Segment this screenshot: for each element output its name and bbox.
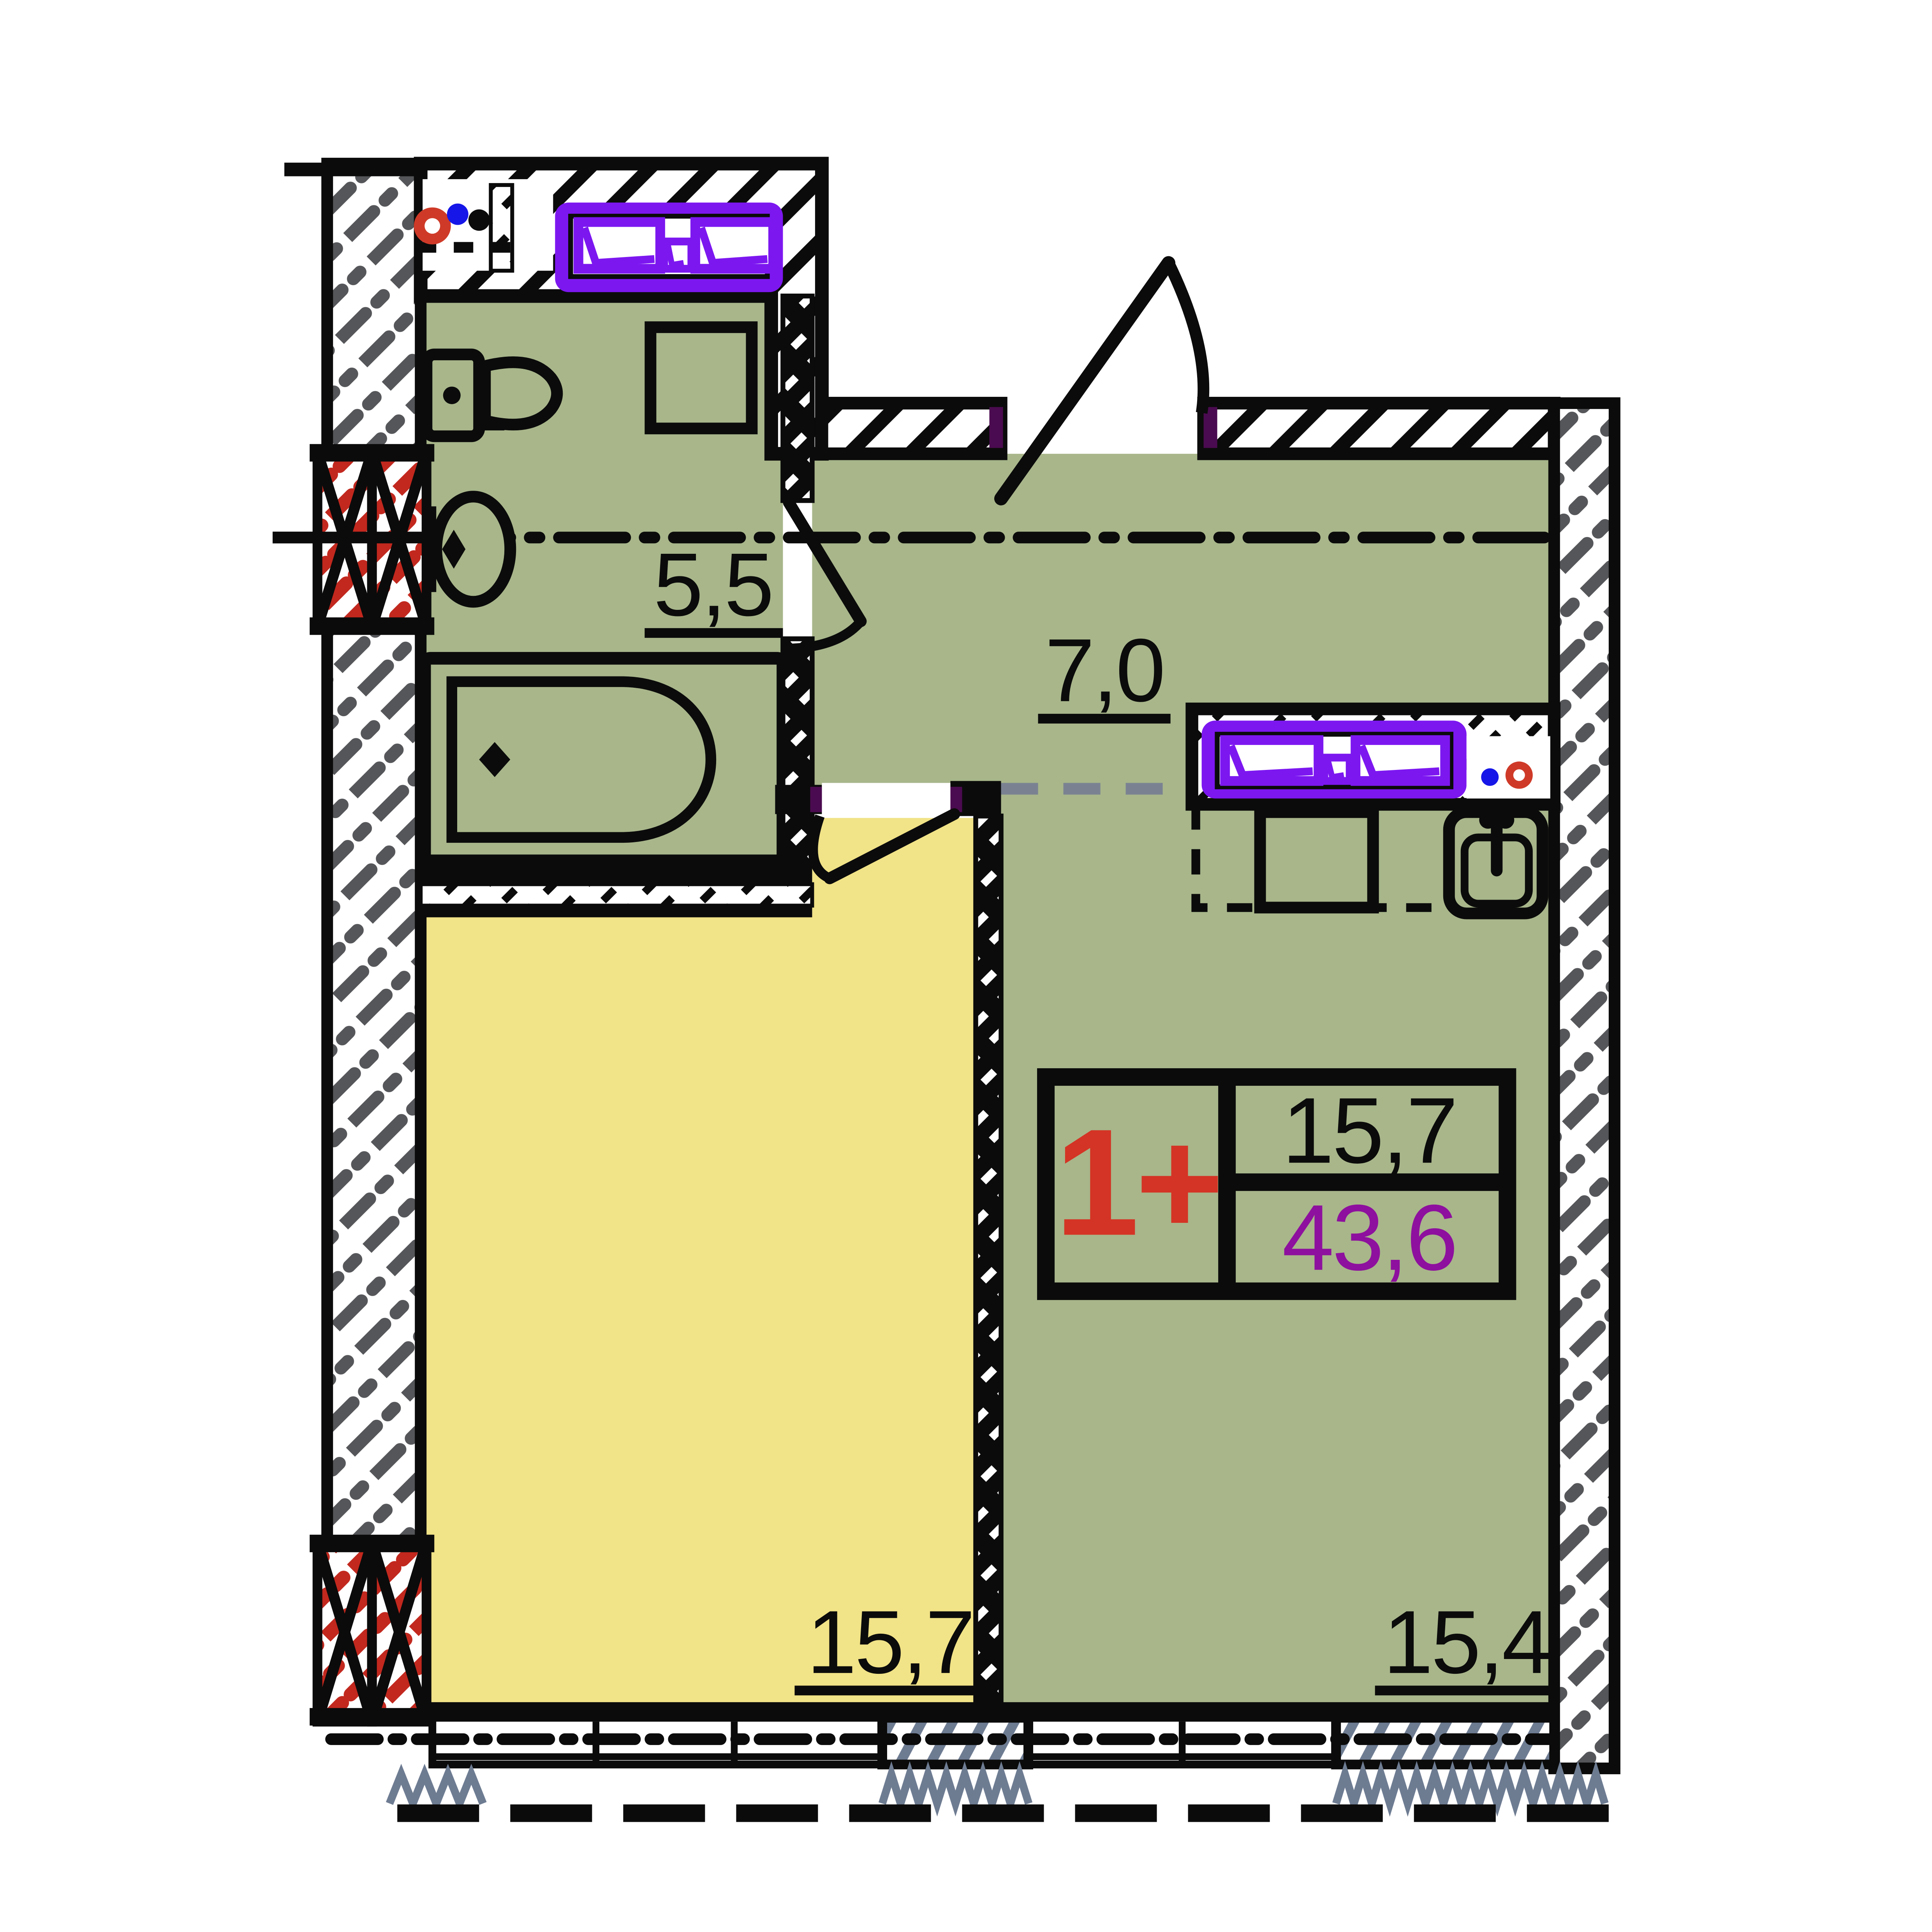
window-kitchen (1202, 720, 1467, 798)
bathroom-bottom-wall (421, 861, 812, 917)
door-opening-gap (822, 783, 950, 816)
kitchen-water-niche (1467, 736, 1550, 798)
stove-symbol (1260, 812, 1373, 907)
living-area-value: 15,7 (1282, 1078, 1456, 1183)
washer-niche (414, 179, 553, 271)
vent-cap (310, 1535, 434, 1552)
toilet-symbol (426, 354, 557, 436)
wall-hatch (421, 884, 812, 905)
entrance-door-swing-arc (1169, 263, 1204, 413)
cold-water-point (1481, 768, 1499, 786)
bedroom-area-label: 15,7 (807, 1592, 974, 1692)
hot-water-hole (1513, 769, 1525, 781)
insulation-zigzag (1336, 1774, 1605, 1803)
cold-water-point (447, 204, 468, 225)
vent-cap (310, 1708, 434, 1726)
wall-edge (421, 905, 812, 917)
apartment-type-value: 1+ (1055, 1097, 1220, 1267)
vent-shaft-bottom (310, 1535, 434, 1726)
insulation-zigzag (882, 1774, 1029, 1803)
window-bathroom (555, 203, 783, 292)
floor-plan-canvas: 1+ 15,7 43,6 5,5 7,0 15,7 15,4 (0, 0, 1932, 1932)
niche-divider (491, 185, 512, 271)
partition-lower (783, 639, 812, 861)
left-exterior-wall (284, 164, 421, 1714)
left-wall (327, 164, 421, 1714)
floor-plan: 1+ 15,7 43,6 5,5 7,0 15,7 15,4 (0, 0, 1932, 1932)
cabinet-symbol (650, 327, 752, 428)
toilet-flush-dot (443, 387, 461, 404)
total-area-value: 43,6 (1282, 1185, 1456, 1290)
door-jamb-mark (990, 407, 1003, 448)
vent-shaft-top (273, 444, 440, 635)
bathtub-outer (424, 658, 783, 861)
insulation-zigzag (389, 1774, 483, 1803)
bathroom-area-label: 5,5 (653, 534, 772, 634)
partition-upper (783, 296, 812, 500)
entry-wall-left (822, 403, 1001, 454)
bathtub-symbol (424, 658, 783, 861)
kitchen-sink-symbol (1449, 811, 1543, 914)
bedroom-floor (421, 818, 976, 1714)
living-kitchen-area-label: 15,4 (1383, 1592, 1550, 1692)
hot-water-hole (424, 218, 440, 234)
right-exterior-wall (1554, 403, 1615, 1768)
door-jamb-mark (950, 787, 962, 812)
door-jamb-mark (810, 787, 822, 812)
vent-cap (310, 617, 434, 635)
hall-area-label: 7,0 (1045, 620, 1164, 720)
bedroom-kitchen-divider-wall (976, 816, 1001, 1714)
bottom-windows (331, 1702, 1628, 1813)
vent-cap (310, 444, 434, 461)
drain-point (468, 210, 490, 231)
wall-core (421, 861, 812, 884)
basin-symbol (430, 497, 510, 602)
entry-wall-right (1204, 403, 1554, 454)
toilet-bowl (485, 362, 557, 424)
